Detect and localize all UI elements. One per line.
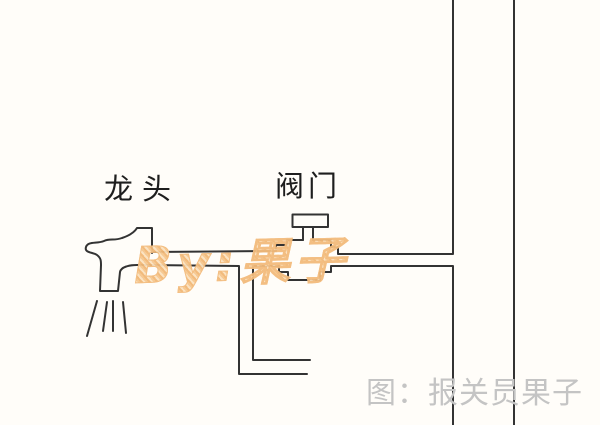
valve-label: 阀门: [275, 172, 341, 201]
valve-handle: [293, 215, 329, 228]
faucet-label: 龙头: [104, 175, 180, 204]
pipe-top-line: [152, 0, 453, 254]
diagram-canvas: 龙头 阀门 By:果子 图：报关员果子: [0, 0, 600, 425]
water-spray-icon: [87, 301, 126, 336]
watermark-text: By:果子: [133, 233, 350, 294]
credit-caption: 图：报关员果子: [366, 379, 583, 409]
plumbing-line-diagram: [0, 0, 600, 425]
